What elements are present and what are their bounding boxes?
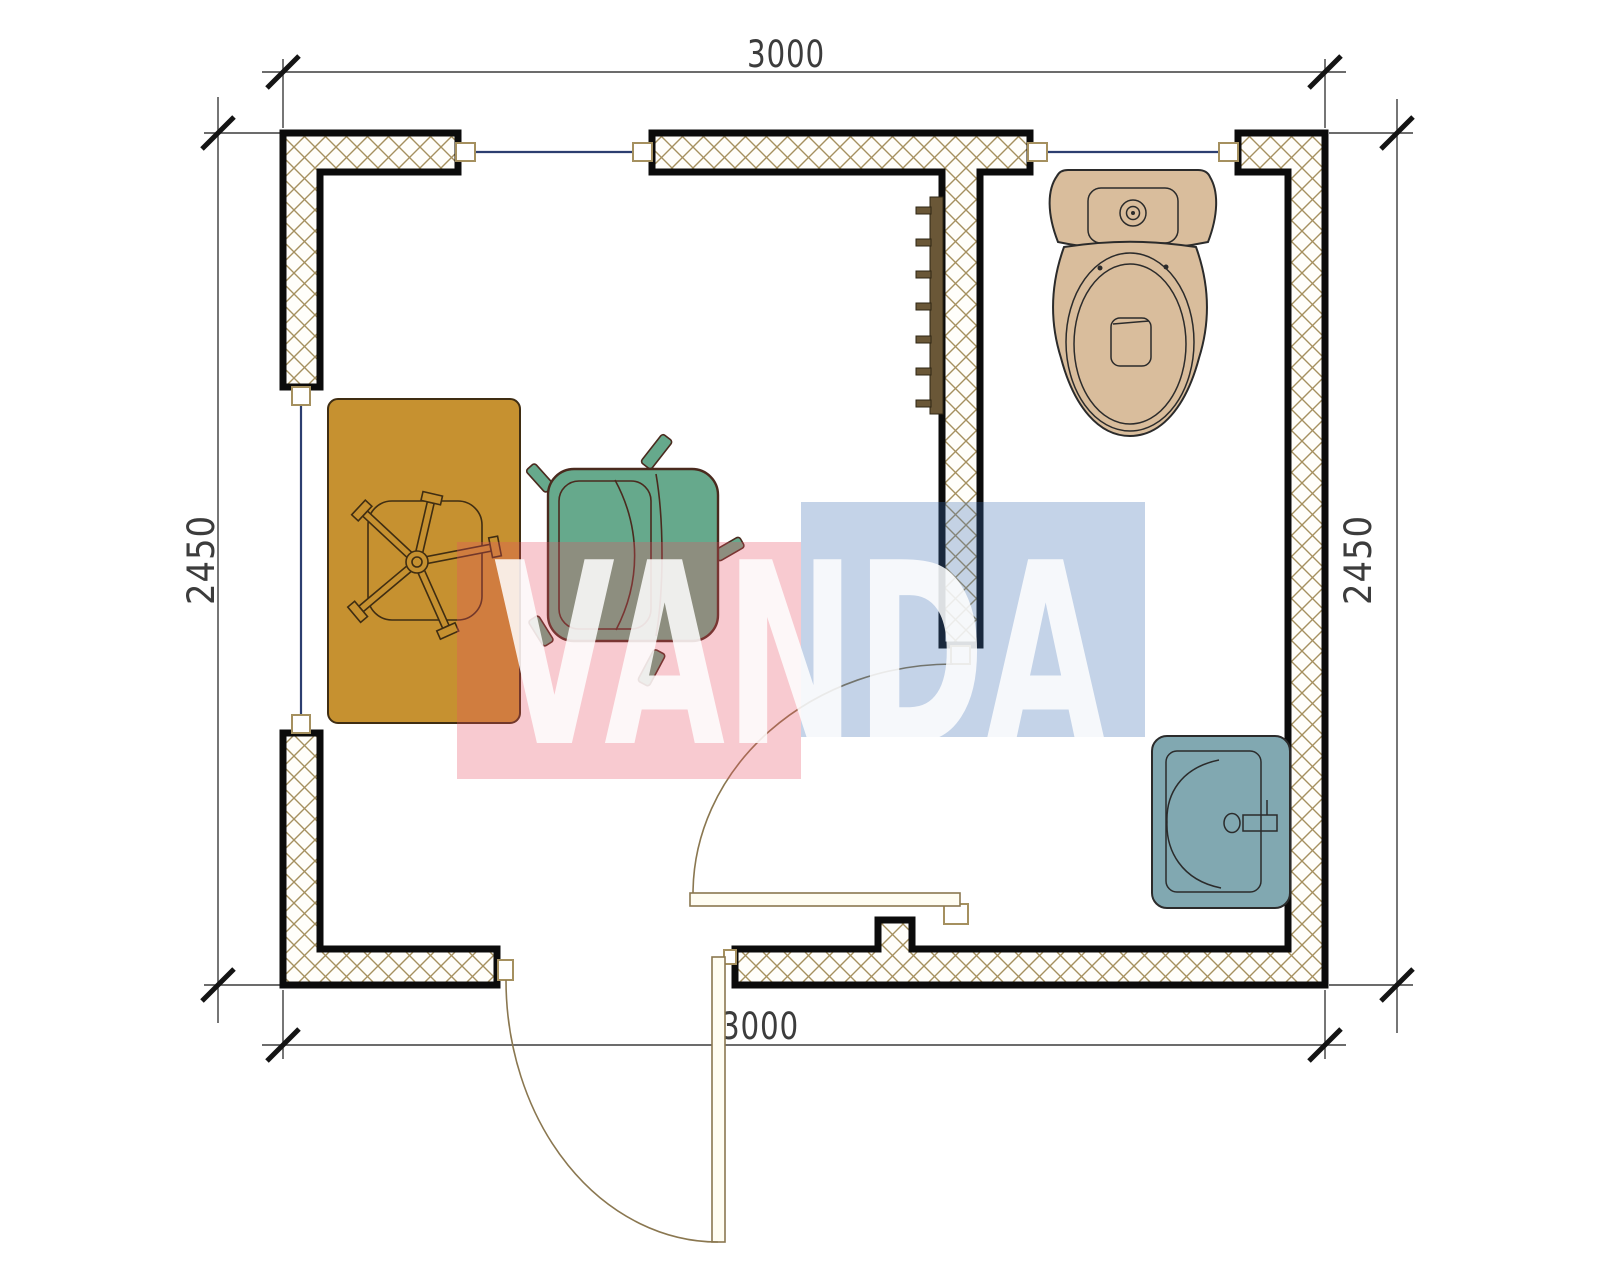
dimension-label-bottom: 3000 — [721, 1005, 799, 1048]
window-jamb — [1028, 143, 1047, 161]
dimension-label-top: 3000 — [747, 33, 825, 76]
toilet-bowl — [1053, 242, 1207, 436]
window-jamb — [292, 387, 310, 405]
radiator-fin — [916, 336, 931, 343]
armchair-leg — [640, 434, 672, 470]
dimension-label-right: 2450 — [1337, 515, 1380, 605]
dimension-label-left: 2450 — [180, 515, 223, 605]
window-jamb — [633, 143, 652, 161]
chair-hub — [406, 551, 428, 573]
sink — [1152, 736, 1290, 908]
dimension-right: 2450 — [1329, 99, 1413, 1033]
watermark: VANDA — [457, 502, 1145, 803]
wall-top-left — [283, 133, 458, 387]
door-swing-arc — [506, 980, 718, 1242]
window-left — [292, 387, 310, 733]
radiator-fin — [916, 207, 931, 214]
floor-plan-page: 3000 3000 2450 2450 — [0, 0, 1600, 1280]
toilet — [1050, 170, 1217, 436]
exterior-door — [498, 950, 736, 1242]
door-leaf — [690, 893, 960, 906]
window-jamb — [1219, 143, 1238, 161]
dimension-bottom: 3000 — [262, 990, 1346, 1061]
radiator-fin — [916, 400, 931, 407]
door-jamb — [498, 960, 513, 980]
floor-plan-canvas: 3000 3000 2450 2450 — [0, 0, 1600, 1280]
toilet-seat-bolt — [1098, 266, 1103, 271]
window-top-right — [1028, 143, 1238, 161]
window-jamb — [292, 715, 310, 733]
radiator-fin — [916, 368, 931, 375]
door-leaf — [712, 957, 725, 1242]
toilet-cistern — [1050, 170, 1217, 250]
radiator-fin — [916, 303, 931, 310]
radiator — [916, 197, 943, 414]
window-jamb — [456, 143, 475, 161]
window-top-left — [456, 143, 652, 161]
watermark-text: VANDA — [494, 510, 1106, 803]
radiator-fin — [916, 271, 931, 278]
dimension-top: 3000 — [262, 33, 1346, 128]
sink-body — [1152, 736, 1290, 908]
dimension-left: 2450 — [180, 97, 281, 1023]
toilet-flush-button-dot — [1131, 211, 1135, 215]
radiator-fin — [916, 239, 931, 246]
toilet-seat-bolt — [1164, 265, 1169, 270]
radiator-bar — [930, 197, 943, 414]
door-jamb — [944, 904, 968, 924]
